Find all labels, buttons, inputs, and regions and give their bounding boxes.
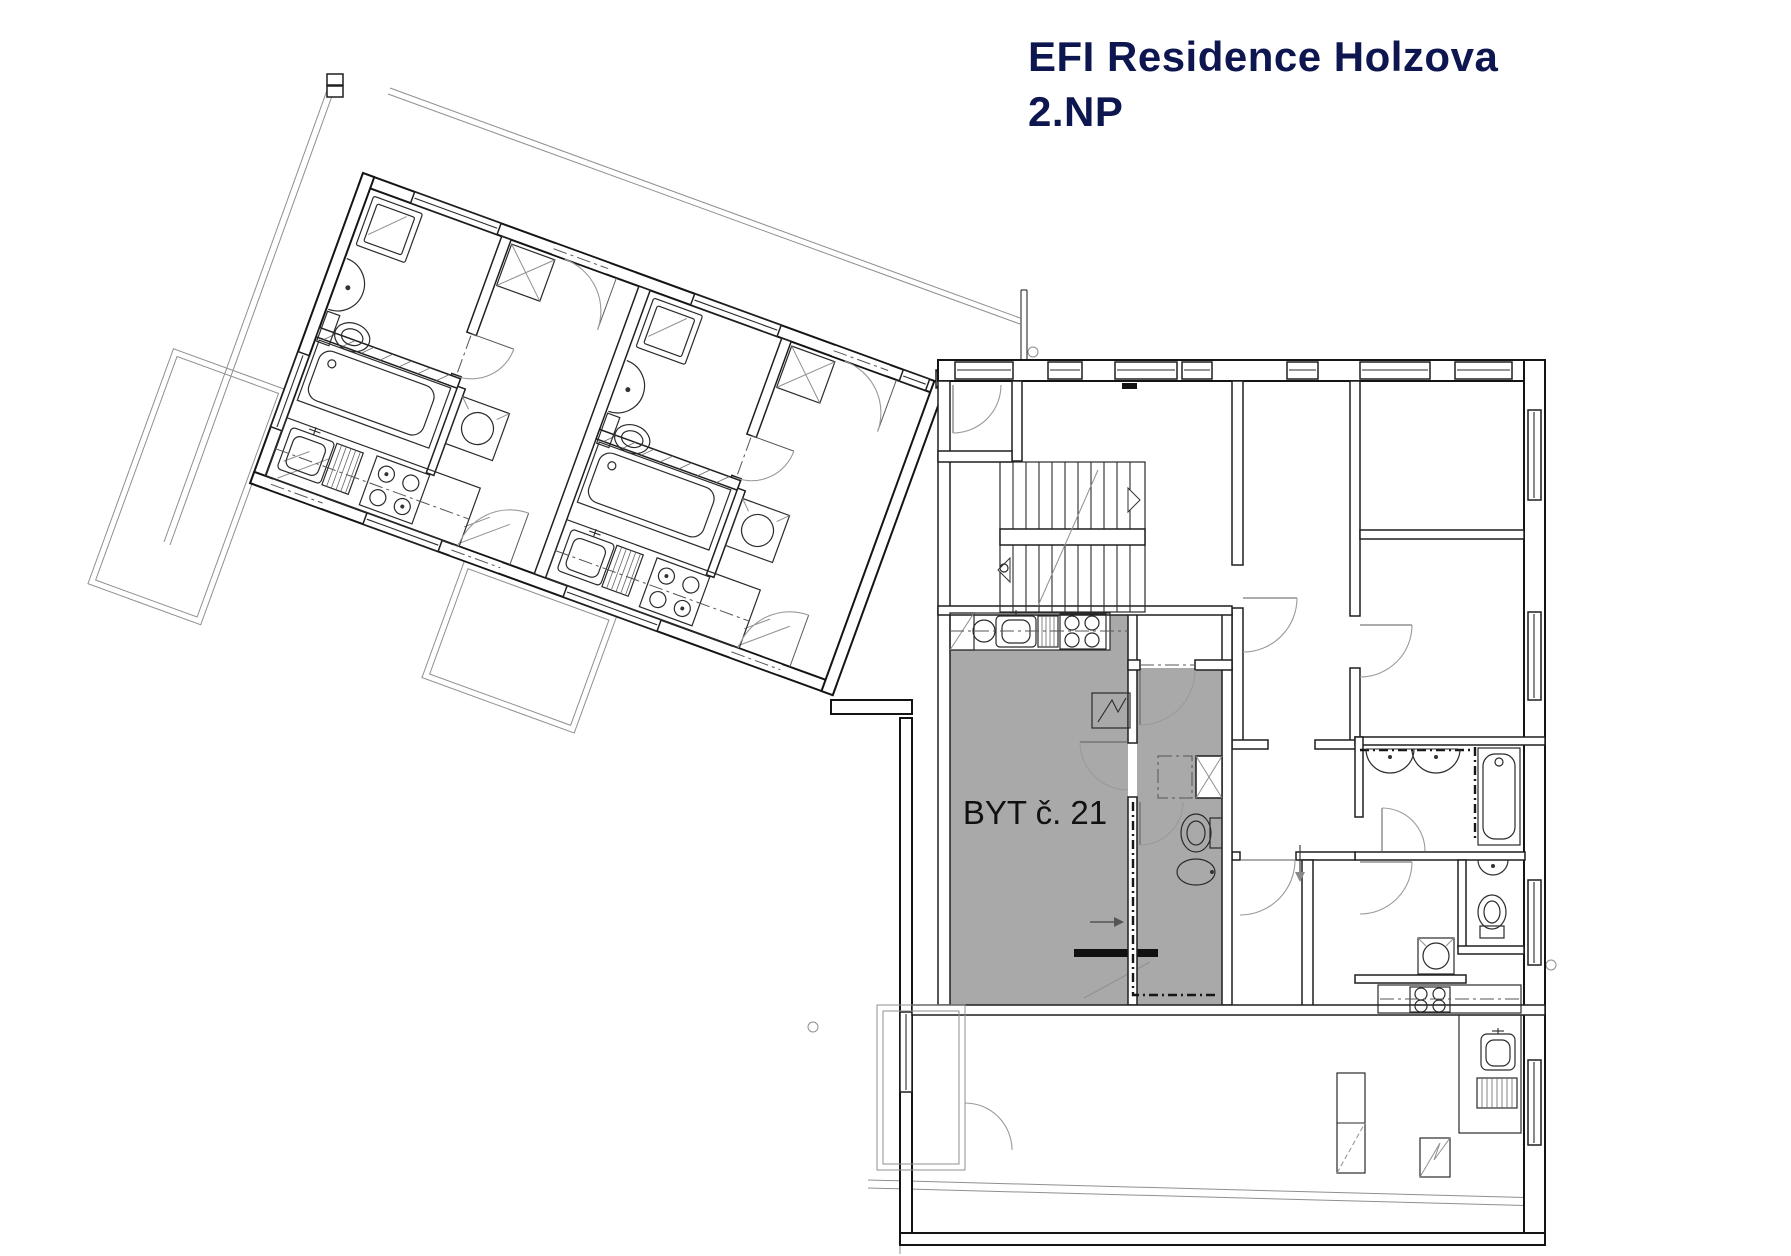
laundry <box>1295 845 1454 974</box>
floor-plan: BYT č. 21 <box>0 0 1791 1256</box>
balcony <box>88 349 651 758</box>
apartment-label: BYT č. 21 <box>963 794 1107 831</box>
byt21-kitchen <box>950 610 1128 650</box>
wing-unit-2[interactable] <box>546 290 897 667</box>
stairwell <box>998 462 1145 612</box>
rotated-wing <box>88 133 946 836</box>
bathtub <box>1478 748 1520 845</box>
apartment-byt-21[interactable]: BYT č. 21 <box>950 613 1222 1005</box>
main-bathroom <box>1360 747 1520 845</box>
junction-wall <box>831 700 912 714</box>
terrace <box>877 1005 965 1170</box>
washbasin <box>1366 749 1460 773</box>
cabinet <box>1337 1073 1450 1177</box>
stair-direction-arrow <box>1128 488 1140 512</box>
floor-plan-page: EFI Residence Holzova 2.NP <box>0 0 1791 1256</box>
kitchen-sink <box>1481 1028 1515 1070</box>
toilet <box>1478 895 1506 938</box>
wc <box>1478 860 1508 938</box>
